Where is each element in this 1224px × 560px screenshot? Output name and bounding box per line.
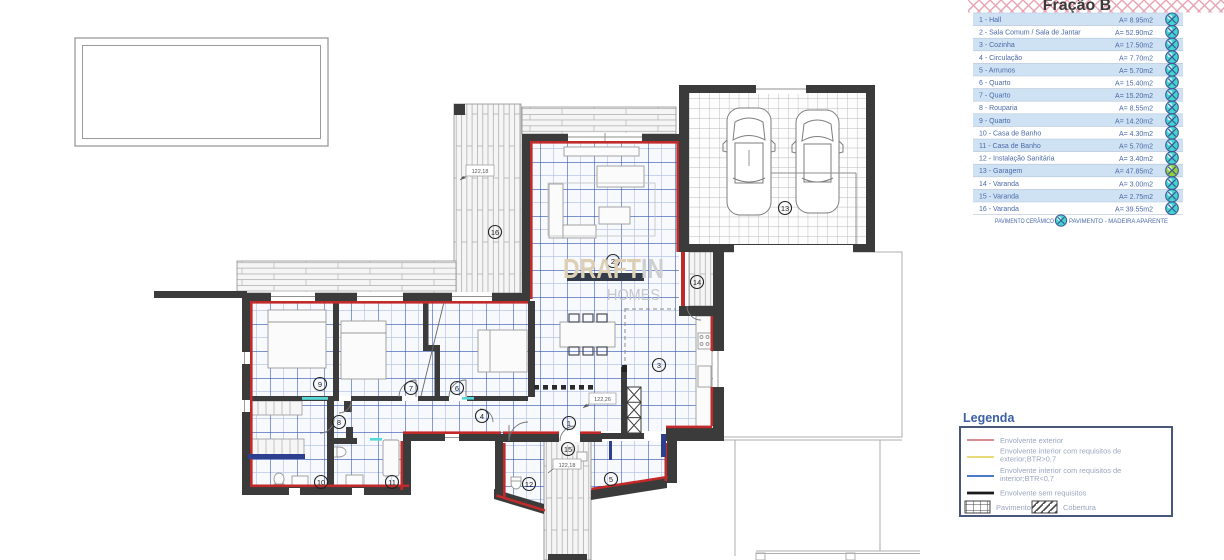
svg-text:12 - Instalação Sanitária: 12 - Instalação Sanitária (979, 156, 1055, 163)
svg-text:4 - Circulação: 4 - Circulação (979, 55, 1022, 62)
svg-text:8: 8 (337, 418, 341, 427)
svg-text:15 - Varanda: 15 - Varanda (979, 193, 1019, 200)
svg-text:6 - Quarto: 6 - Quarto (979, 80, 1011, 87)
svg-text:10 - Casa de Banho: 10 - Casa de Banho (979, 130, 1041, 137)
svg-text:A= 7.70m2: A= 7.70m2 (1119, 55, 1153, 62)
svg-text:14 - Varanda: 14 - Varanda (979, 181, 1019, 188)
svg-text:4: 4 (480, 412, 484, 421)
svg-text:Pavimento: Pavimento (996, 503, 1031, 512)
svg-text:exterior;BTR>0,7: exterior;BTR>0,7 (1000, 455, 1056, 464)
svg-text:A= 5.70m2: A= 5.70m2 (1119, 68, 1153, 75)
svg-text:A= 3.00m2: A= 3.00m2 (1119, 181, 1153, 188)
svg-text:A= 15.20m2: A= 15.20m2 (1115, 93, 1153, 100)
svg-text:122,18: 122,18 (559, 463, 576, 469)
svg-text:6: 6 (455, 384, 459, 393)
svg-text:Envolvente exterior: Envolvente exterior (1000, 436, 1064, 445)
svg-text:13 - Garagem: 13 - Garagem (979, 168, 1022, 175)
svg-text:11 - Casa de Banho: 11 - Casa de Banho (979, 143, 1041, 150)
svg-text:Fração B: Fração B (1043, 0, 1111, 14)
svg-text:Envolvente sem requisitos: Envolvente sem requisitos (1000, 489, 1087, 498)
svg-text:interior;BTR<0,7: interior;BTR<0,7 (1000, 474, 1054, 483)
svg-text:3 - Cozinha: 3 - Cozinha (979, 42, 1015, 49)
svg-text:12: 12 (525, 480, 533, 489)
svg-text:5 - Arrumos: 5 - Arrumos (979, 67, 1016, 74)
svg-text:PAVIMENTO CERÂMICO: PAVIMENTO CERÂMICO (995, 218, 1054, 225)
svg-text:10: 10 (317, 478, 325, 487)
svg-text:8 - Rouparia: 8 - Rouparia (979, 105, 1018, 112)
svg-text:15: 15 (564, 445, 572, 454)
svg-text:11: 11 (388, 478, 396, 487)
svg-text:A= 15.40m2: A= 15.40m2 (1115, 81, 1153, 88)
svg-text:16: 16 (491, 228, 499, 237)
svg-text:A= 47.85m2: A= 47.85m2 (1115, 169, 1153, 176)
svg-text:122,26: 122,26 (594, 397, 611, 403)
svg-text:A= 4.30m2: A= 4.30m2 (1119, 131, 1153, 138)
svg-text:13: 13 (781, 204, 789, 213)
svg-text:9 - Quarto: 9 - Quarto (979, 118, 1011, 125)
svg-text:A= 3.40m2: A= 3.40m2 (1119, 156, 1153, 163)
svg-text:A= 8.95m2: A= 8.95m2 (1119, 18, 1153, 25)
svg-text:HOMES: HOMES (607, 287, 660, 304)
svg-text:1: 1 (567, 419, 571, 428)
svg-text:PAVIMENTO - MADEIRA APARENTE: PAVIMENTO - MADEIRA APARENTE (1069, 218, 1168, 225)
svg-text:3: 3 (657, 361, 661, 370)
svg-text:A= 17.50m2: A= 17.50m2 (1115, 43, 1153, 50)
svg-text:A= 14.20m2: A= 14.20m2 (1115, 118, 1153, 125)
svg-text:5: 5 (609, 475, 613, 484)
svg-text:9: 9 (318, 380, 322, 389)
svg-text:14: 14 (693, 278, 701, 287)
svg-text:A= 5.70m2: A= 5.70m2 (1119, 144, 1153, 151)
svg-text:Cobertura: Cobertura (1063, 503, 1097, 512)
svg-text:Legenda: Legenda (963, 411, 1015, 425)
svg-text:2 - Sala Comum / Sala de Jant: 2 - Sala Comum / Sala de Jantar (979, 30, 1081, 37)
svg-text:7: 7 (409, 384, 413, 393)
svg-text:A= 39.55m2: A= 39.55m2 (1115, 207, 1153, 214)
svg-text:7 - Quarto: 7 - Quarto (979, 93, 1011, 100)
svg-text:A= 8.55m2: A= 8.55m2 (1119, 106, 1153, 113)
svg-text:122,18: 122,18 (472, 169, 489, 175)
svg-text:A= 2.75m2: A= 2.75m2 (1119, 194, 1153, 201)
svg-text:A= 52.90m2: A= 52.90m2 (1115, 30, 1153, 37)
svg-text:1 - Hall: 1 - Hall (979, 17, 1002, 24)
svg-text:16 - Varanda: 16 - Varanda (979, 206, 1019, 213)
svg-text:DRAFTIN: DRAFTIN (563, 253, 664, 284)
